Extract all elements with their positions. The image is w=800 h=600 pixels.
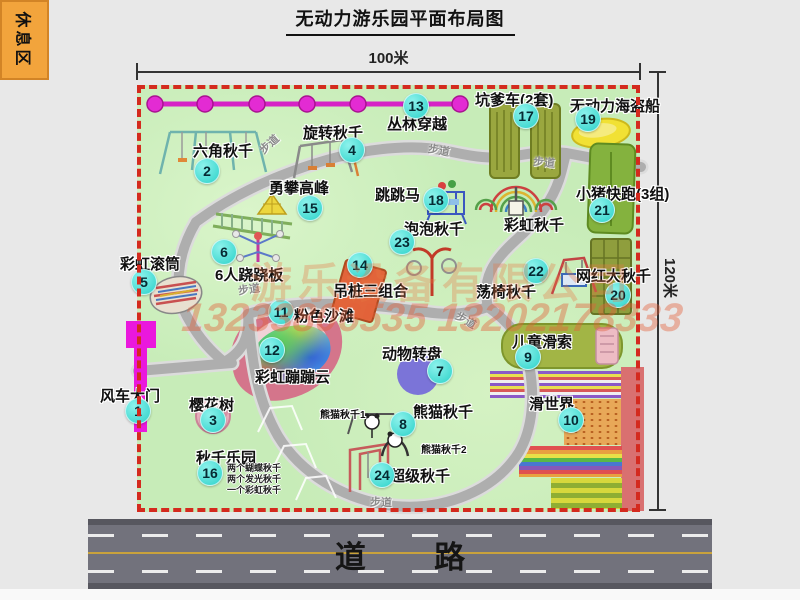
dimension-height-label: 120米	[660, 258, 681, 298]
road-label: 道路	[88, 525, 712, 583]
page-bottom-strip	[0, 589, 800, 600]
dimension-right-tick-top	[649, 71, 666, 73]
slide-world-rainbow-block	[519, 446, 622, 477]
road-band: 道路	[88, 519, 712, 589]
page-title-wrap: 无动力游乐园平面布局图	[0, 5, 800, 36]
page-title: 无动力游乐园平面布局图	[286, 5, 515, 36]
slide-world-orange-block	[564, 399, 621, 445]
dimension-width-label: 100米	[137, 47, 640, 68]
watermark-phones: 13233806535 13202178333	[180, 296, 684, 341]
slide-world-column	[621, 367, 644, 511]
dimension-top-line	[137, 71, 640, 73]
slide-world-green-block	[551, 478, 622, 509]
dimension-right-tick-bottom	[649, 509, 666, 511]
slide-world-stripes	[490, 371, 623, 398]
dimension-right-line	[657, 72, 659, 510]
screenshot-root: 无动力游乐园平面布局图 100米 120米 休息区	[0, 0, 800, 600]
